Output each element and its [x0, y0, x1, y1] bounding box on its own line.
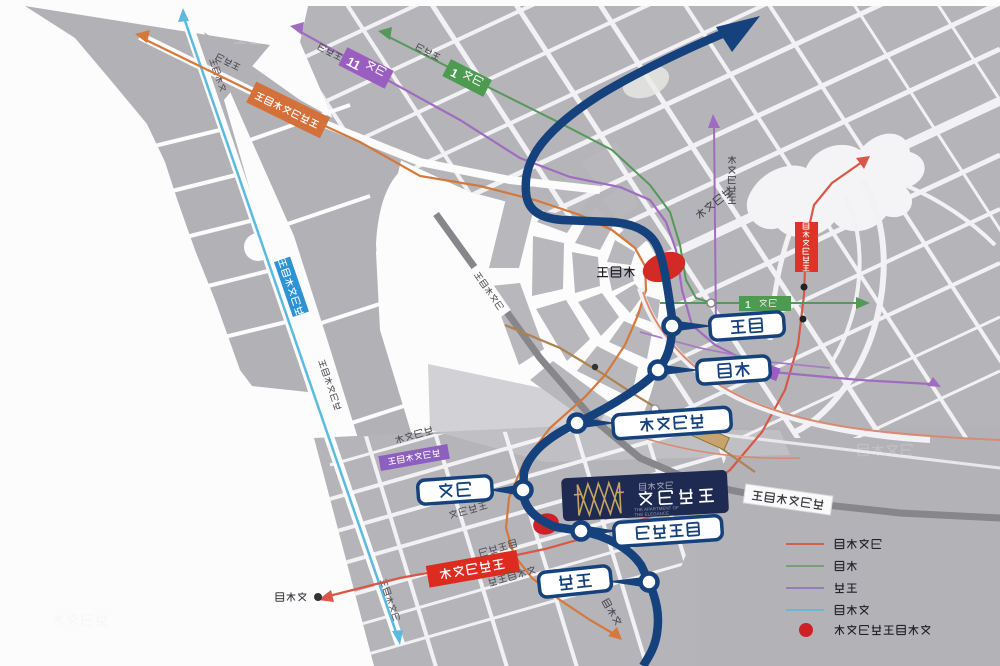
svg-text:1: 1	[745, 299, 751, 311]
